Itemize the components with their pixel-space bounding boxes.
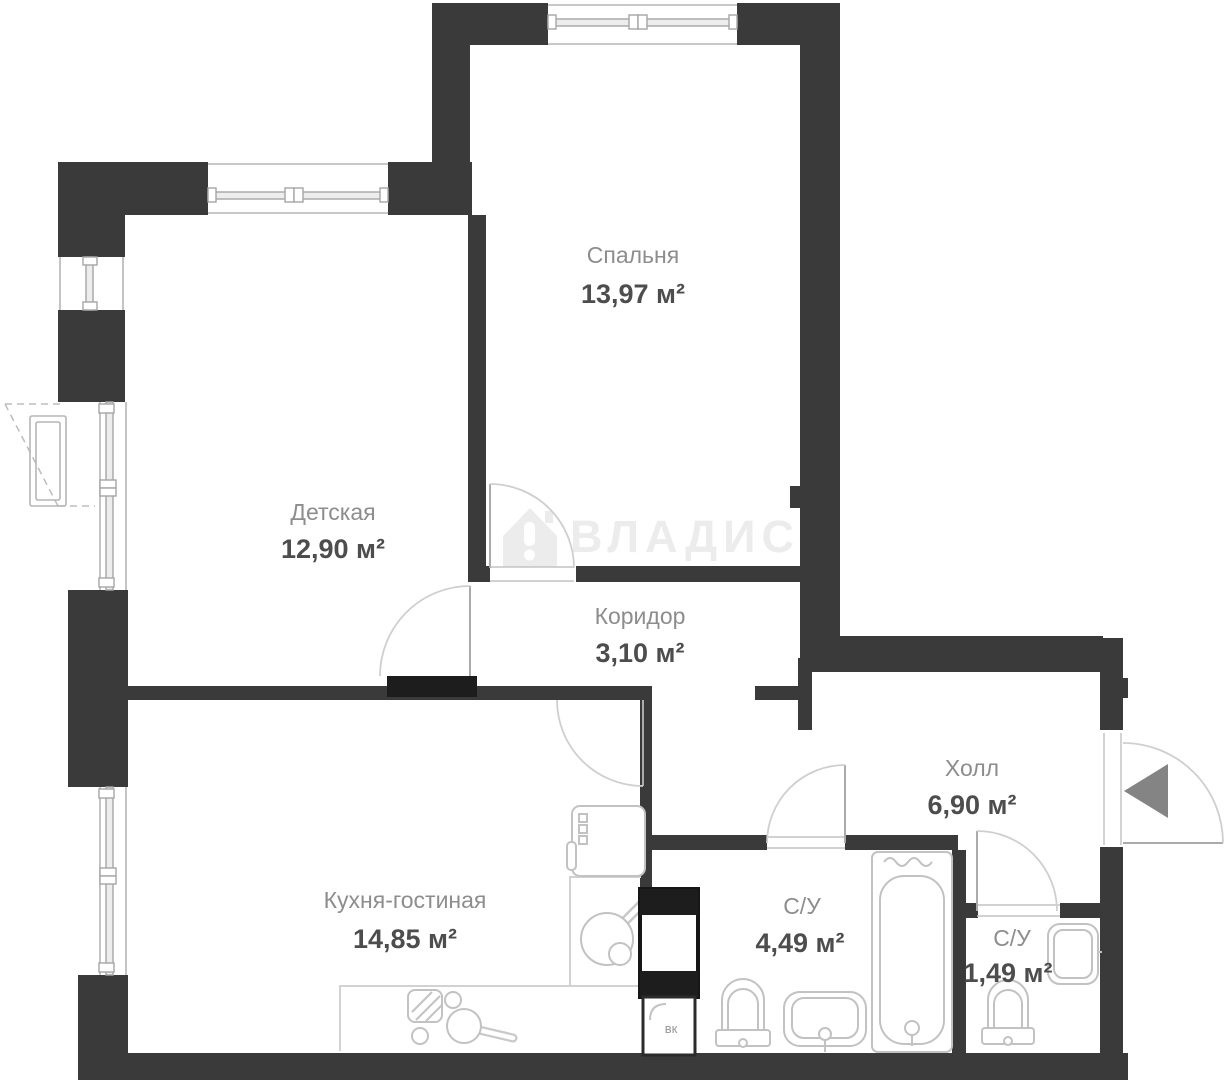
entrance-arrow-icon <box>1124 764 1168 818</box>
door-threshold <box>387 676 477 697</box>
room-name: Холл <box>945 755 999 781</box>
room-area: 14,85 м² <box>353 924 457 954</box>
window-left-kitchen <box>98 787 128 975</box>
room-name: С/У <box>783 893 821 919</box>
floor-plan: ВЛАДИС <box>0 0 1231 1080</box>
door-children <box>380 586 470 676</box>
room-area: 13,97 м² <box>581 279 685 309</box>
vk-label: вк <box>665 1021 678 1036</box>
kitchen-sink <box>581 900 646 965</box>
room-label-corridor: Коридор 3,10 м² <box>595 603 686 668</box>
vk-box: вк <box>643 997 695 1055</box>
window-children-top <box>208 162 388 215</box>
room-area: 12,90 м² <box>281 534 385 564</box>
watermark-house-icon <box>503 508 557 567</box>
entrance-door <box>1104 733 1223 845</box>
room-name: Коридор <box>595 603 686 629</box>
room-name: Кухня-гостиная <box>324 887 487 913</box>
room-label-bathroom: С/У 4,49 м² <box>755 893 844 958</box>
window-bedroom-top <box>548 3 737 45</box>
room-label-kitchen: Кухня-гостиная 14,85 м² <box>324 887 487 954</box>
stove <box>408 990 513 1044</box>
washbasin <box>784 992 866 1052</box>
sink-small <box>1048 924 1102 984</box>
floor-plan-drawing: ВЛАДИС <box>0 0 1231 1080</box>
watermark-text: ВЛАДИС <box>570 511 800 562</box>
ac-unit <box>5 404 95 506</box>
toilet-small <box>982 980 1034 1045</box>
room-area: 6,90 м² <box>927 790 1016 820</box>
room-label-bedroom: Спальня 13,97 м² <box>581 242 685 309</box>
watermark: ВЛАДИС <box>503 508 800 567</box>
room-area: 3,10 м² <box>595 638 684 668</box>
fridge <box>567 806 645 876</box>
window-left-small <box>58 257 125 310</box>
door-toilet <box>977 831 1060 916</box>
toilet <box>716 979 770 1047</box>
window-left-children <box>98 402 128 590</box>
room-name: Спальня <box>587 242 679 268</box>
room-name: С/У <box>993 925 1031 951</box>
room-area: 4,49 м² <box>755 928 844 958</box>
door-kitchen <box>557 700 643 786</box>
room-label-toilet: С/У 1,49 м² <box>963 925 1052 988</box>
vent-shaft <box>640 889 698 997</box>
room-label-hall: Холл 6,90 м² <box>927 755 1016 820</box>
bathtub <box>872 852 952 1052</box>
door-bathroom <box>767 765 845 848</box>
room-name: Детская <box>290 499 375 525</box>
room-area: 1,49 м² <box>963 958 1052 988</box>
room-label-children: Детская 12,90 м² <box>281 499 385 564</box>
